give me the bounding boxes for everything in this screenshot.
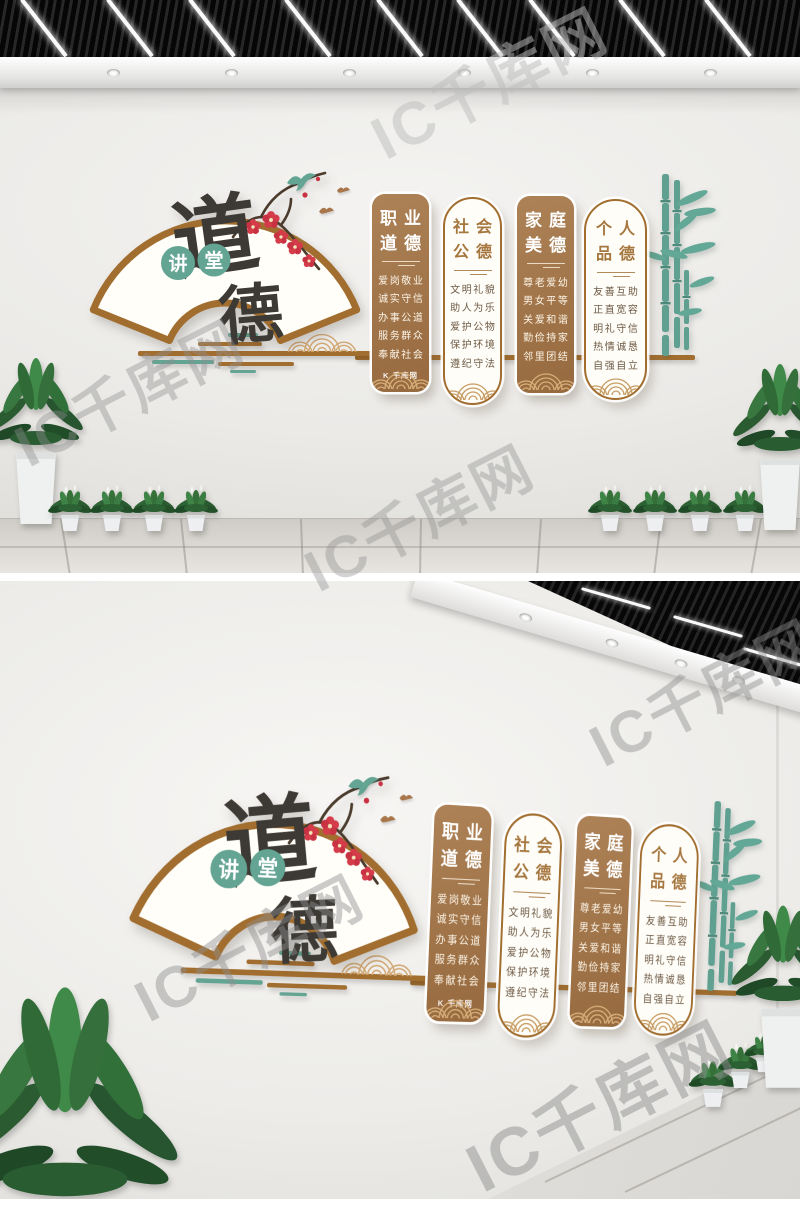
seal-char-tang: 堂 [204,250,223,272]
virtue-list: 尊老爱幼男女平等关爱和谐勤俭持家邻里团结 [517,275,574,368]
virtue-item: 文明礼貌 [503,904,558,926]
large-potted-plant [730,358,800,533]
culture-wall-mockup: 道 德 讲 堂 [0,0,800,1199]
virtue-list: 文明礼貌助人为乐爱护公物保护环境遵纪守法 [445,282,500,375]
pill-title-line: 家庭 [576,828,631,858]
deco-line [230,370,256,373]
sparrow-bird-icon [336,184,351,194]
virtue-item: 文明礼貌 [445,282,500,301]
divider [597,272,635,277]
virtue-item: 友善互助 [639,912,695,934]
pill-title: 家庭 美德 [575,828,631,884]
fan-shape: 道 德 讲 堂 [85,165,375,360]
pill-title-line: 道德 [432,844,490,874]
pill-title: 家庭 美德 [517,208,574,258]
virtue-item: 正直宽容 [586,302,645,321]
angled-view-panel: 道 德 讲 堂 [0,581,800,1199]
virtue-item: 助人为乐 [445,300,500,319]
virtue-item: 友善互助 [586,284,645,303]
virtue-list: 友善互助正直宽容明礼守信热情诚恳自强自立 [636,912,695,1011]
cloud-motif [584,373,647,395]
virtue-list: 爱岗敬业诚实守信办事公道服务群众奉献社会 [372,273,429,366]
virtue-item: 明礼守信 [586,321,645,340]
cloud-motif [633,1006,693,1031]
cloud-motif [569,999,628,1024]
cloud-motif [443,378,502,400]
virtue-item: 男女平等 [517,293,574,312]
pill-title-line: 品德 [640,868,696,897]
divider [650,900,686,907]
pill-title-line: 美德 [575,855,630,885]
cloud-motif [372,367,429,389]
virtue-item: 遵纪守法 [445,356,500,375]
divider [513,891,550,898]
virtue-list: 爱岗敬业诚实守信办事公道服务群众奉献社会 [427,890,488,993]
cloud-motif [426,993,488,1019]
virtue-item: 勤俭持家 [517,330,574,349]
sparrow-bird-icon [318,204,335,215]
virtue-item: 诚实守信 [372,291,429,310]
divider [441,878,479,885]
virtue-item: 男女平等 [573,919,628,941]
pill-title-line: 美德 [517,233,574,258]
swallow-bird-icon [347,772,381,801]
virtue-list: 尊老爱幼男女平等关爱和谐勤俭持家邻里团结 [570,899,628,1000]
small-potted-plant [633,478,677,532]
seal-char-jiang: 讲 [168,252,187,275]
pill-title-line: 品德 [586,242,645,267]
small-potted-plant [678,478,722,532]
divider [584,887,620,894]
virtue-item: 助人为乐 [502,924,557,946]
virtue-pill: 家庭 美德 尊老爱幼男女平等关爱和谐勤俭持家邻里团结 [517,196,574,393]
divider [382,261,420,266]
calligraphy-de: 德 [269,892,340,974]
virtue-item: 办事公道 [429,931,487,954]
deco-line [152,360,214,364]
sparrow-bird-icon [398,791,414,803]
virtue-list: 友善互助正直宽容明礼守信热情诚恳自强自立 [586,284,645,377]
pill-title-line: 社会 [445,215,500,240]
pill-title-line: 公德 [505,858,560,888]
seal-char-jiang: 讲 [218,857,240,882]
small-potted-plant [588,478,632,532]
virtue-pills: 职业 道德 爱岗敬业诚实守信办事公道服务群众奉献社会 K 千库网 社会 公德 文… [44,581,800,632]
pill-title-line: 职业 [372,206,429,231]
seal-char-tang: 堂 [257,856,278,881]
deco-line [218,362,294,366]
pill-title-line: 道德 [372,231,429,256]
deco-line [267,983,347,990]
small-potted-plant [174,478,218,532]
virtue-item: 爱护公物 [445,319,500,338]
calligraphy-de: 德 [216,277,286,353]
deco-line [279,992,307,996]
virtue-pill: 个人 品德 友善互助正直宽容明礼守信热情诚恳自强自立 [633,822,700,1036]
virtue-item: 办事公道 [372,310,429,329]
virtue-item: 关爱和谐 [572,939,627,961]
sparrow-bird-icon [379,811,397,824]
pill-title-line: 职业 [433,817,491,848]
small-potted-plant [48,478,92,532]
virtue-item: 热情诚恳 [636,971,692,992]
morality-wall-design: 道 德 讲 堂 [0,0,800,430]
virtue-item: 奉献社会 [427,971,485,993]
virtue-item: 保护环境 [445,337,500,356]
virtue-item: 服务群众 [372,328,429,347]
large-potted-plant [728,899,800,1091]
virtue-item: 正直宽容 [638,932,694,954]
virtue-pill: 社会 公德 文明礼貌助人为乐爱护公物保护环境遵纪守法 [443,197,502,405]
divider [527,263,565,268]
virtue-item: 诚实守信 [430,911,488,934]
pill-title: 职业 道德 [432,817,491,875]
pill-title-line: 公德 [445,240,500,265]
panel-divider [0,573,800,581]
large-potted-plant [0,973,185,1199]
virtue-item: 服务群众 [428,951,486,973]
cloud-motif [517,368,574,390]
virtue-item: 邻里团结 [570,979,625,1001]
small-potted-plant [132,478,176,532]
virtue-item: 尊老爱幼 [574,899,629,921]
virtue-item: 爱岗敬业 [431,890,489,913]
virtue-item: 热情诚恳 [586,339,645,358]
virtue-pill: 社会 公德 文明礼貌助人为乐爱护公物保护环境遵纪守法 [496,812,563,1039]
front-view-panel: 道 德 讲 堂 [0,0,800,573]
virtue-item: 奉献社会 [372,347,429,366]
pill-title: 社会 公德 [505,831,561,888]
cloud-motif [496,1008,557,1033]
pill-title: 职业 道德 [372,206,429,256]
pill-title: 社会 公德 [445,215,500,265]
virtue-item: 保护环境 [501,964,556,986]
pill-title-line: 家庭 [517,208,574,233]
virtue-pill: 职业 道德 爱岗敬业诚实守信办事公道服务群众奉献社会 K 千库网 [372,194,429,392]
pill-title-line: 个人 [586,217,645,242]
pill-title: 个人 品德 [586,217,645,267]
pill-title-line: 社会 [506,831,561,861]
virtue-item: 爱岗敬业 [372,273,429,292]
virtue-item: 遵纪守法 [500,984,555,1006]
virtue-item: 尊老爱幼 [517,275,574,294]
virtue-item: 关爱和谐 [517,312,574,331]
bamboo-decoration [646,170,730,360]
pill-title: 个人 品德 [640,842,697,898]
small-potted-plant [90,478,134,532]
virtue-item: 勤俭持家 [571,959,626,981]
fan-shape: 道 德 讲 堂 [122,751,440,986]
pill-title-line: 个人 [641,842,697,871]
virtue-item: 爱护公物 [501,944,556,966]
virtue-list: 文明礼貌助人为乐爱护公物保护环境遵纪守法 [500,904,558,1006]
virtue-pill: 个人 品德 友善互助正直宽容明礼守信热情诚恳自强自立 [584,199,647,400]
swallow-bird-icon [286,170,318,194]
virtue-item: 邻里团结 [517,349,574,368]
virtue-pill: 家庭 美德 尊老爱幼男女平等关爱和谐勤俭持家邻里团结 [569,815,632,1027]
divider [454,270,492,275]
virtue-item: 明礼守信 [637,951,693,973]
